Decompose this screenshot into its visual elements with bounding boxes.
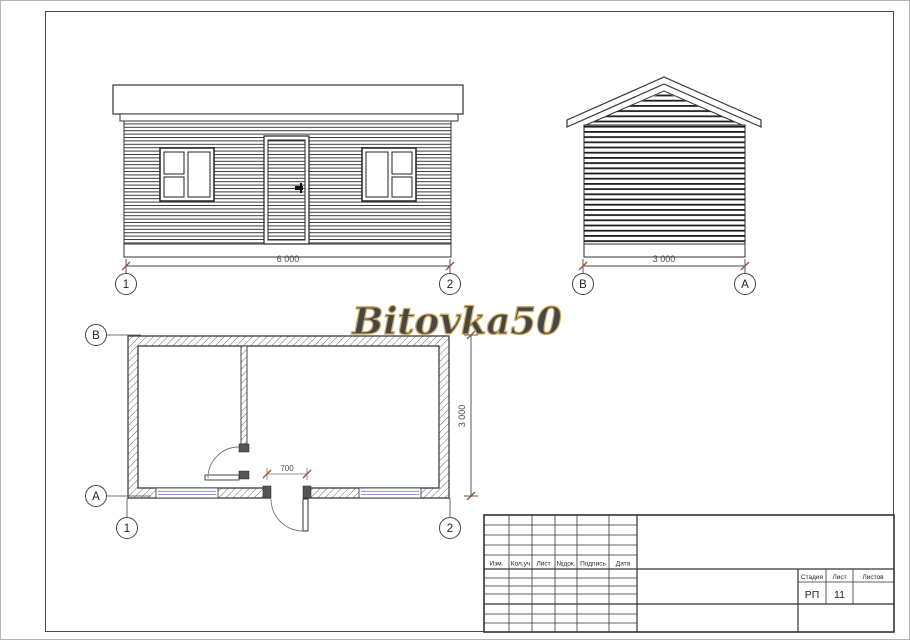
- side-wall-siding: [584, 125, 745, 244]
- axis-label-b: B: [92, 330, 100, 342]
- sheet-value: 11: [834, 589, 845, 601]
- axis-label-1: 1: [124, 523, 130, 535]
- axis-label-b: B: [579, 279, 587, 291]
- plan-axis-bubbles: B A 1 2: [86, 325, 461, 539]
- door-jamb: [263, 486, 271, 498]
- front-elevation: 6 000 1 2: [113, 85, 463, 295]
- drawing-sheet: 6 000 1 2 3 000 B: [0, 0, 910, 640]
- partition-wall: [241, 346, 247, 444]
- drawing-canvas: 6 000 1 2 3 000 B: [1, 1, 910, 640]
- dimension-text-door: 700: [280, 464, 294, 473]
- axis-label-1: 1: [123, 279, 129, 291]
- dimension-text-width: 6 000: [277, 254, 300, 264]
- front-window-left: [160, 148, 214, 201]
- plan-window-left: [156, 488, 218, 498]
- window-pane: [366, 152, 388, 197]
- plan-entrance-door: [263, 486, 311, 531]
- watermark-outline: Bitovka50: [351, 299, 562, 343]
- rev-header-data: Дата: [616, 561, 631, 568]
- side-elevation: 3 000 B A: [567, 77, 761, 295]
- door-swing-arc: [208, 447, 239, 478]
- door-handle-icon: [300, 183, 302, 193]
- entrance-door-elevation: [264, 136, 309, 244]
- axis-label-a: A: [741, 279, 749, 291]
- watermark: Bitovka50: [351, 299, 562, 343]
- door-leaf: [303, 499, 308, 531]
- rev-header-podpis: Подпись: [580, 561, 606, 568]
- dimension-text-depth-plan: 3 000: [457, 405, 467, 428]
- sheet-label: Лист: [832, 574, 846, 581]
- stage-value: РП: [805, 589, 820, 601]
- rev-header-izm: Изм.: [490, 561, 504, 568]
- door-jamb: [239, 444, 249, 452]
- axis-label-a: A: [92, 491, 100, 503]
- axis-label-2: 2: [447, 523, 453, 535]
- dimension-text-depth: 3 000: [653, 254, 676, 264]
- window-pane: [164, 177, 184, 197]
- side-axis-bubbles: B A: [573, 274, 756, 295]
- plan-window-right: [359, 488, 421, 498]
- front-roof-band: [113, 85, 463, 114]
- axis-label-2: 2: [447, 279, 453, 291]
- door-swing-arc: [271, 499, 303, 531]
- stage-label: Стадия: [801, 574, 824, 581]
- watermark-text: Bitovka50: [351, 299, 562, 343]
- window-pane: [392, 152, 412, 174]
- rev-header-ndok: №док.: [556, 561, 575, 568]
- rev-header-koluch: Кол.уч: [511, 561, 531, 568]
- door-opening: [271, 487, 303, 499]
- window-pane: [392, 177, 412, 197]
- door-jamb: [239, 471, 249, 479]
- door-jamb: [303, 486, 311, 498]
- front-window-right: [362, 148, 416, 201]
- floor-plan: 700 3 000 B A 1 2: [86, 325, 479, 539]
- front-axis-bubbles: 1 2: [116, 274, 461, 295]
- plan-partition: [205, 346, 249, 480]
- title-block: Изм. Кол.уч Лист №док. Подпись Дата Стад…: [484, 515, 894, 632]
- dimension-tick-marks: [122, 262, 749, 500]
- front-roof-fascia: [120, 114, 458, 121]
- window-pane: [164, 152, 184, 174]
- window-pane: [188, 152, 210, 197]
- door-leaf: [205, 475, 239, 480]
- sheets-label: Листов: [862, 574, 884, 581]
- rev-header-list: Лист: [536, 561, 550, 568]
